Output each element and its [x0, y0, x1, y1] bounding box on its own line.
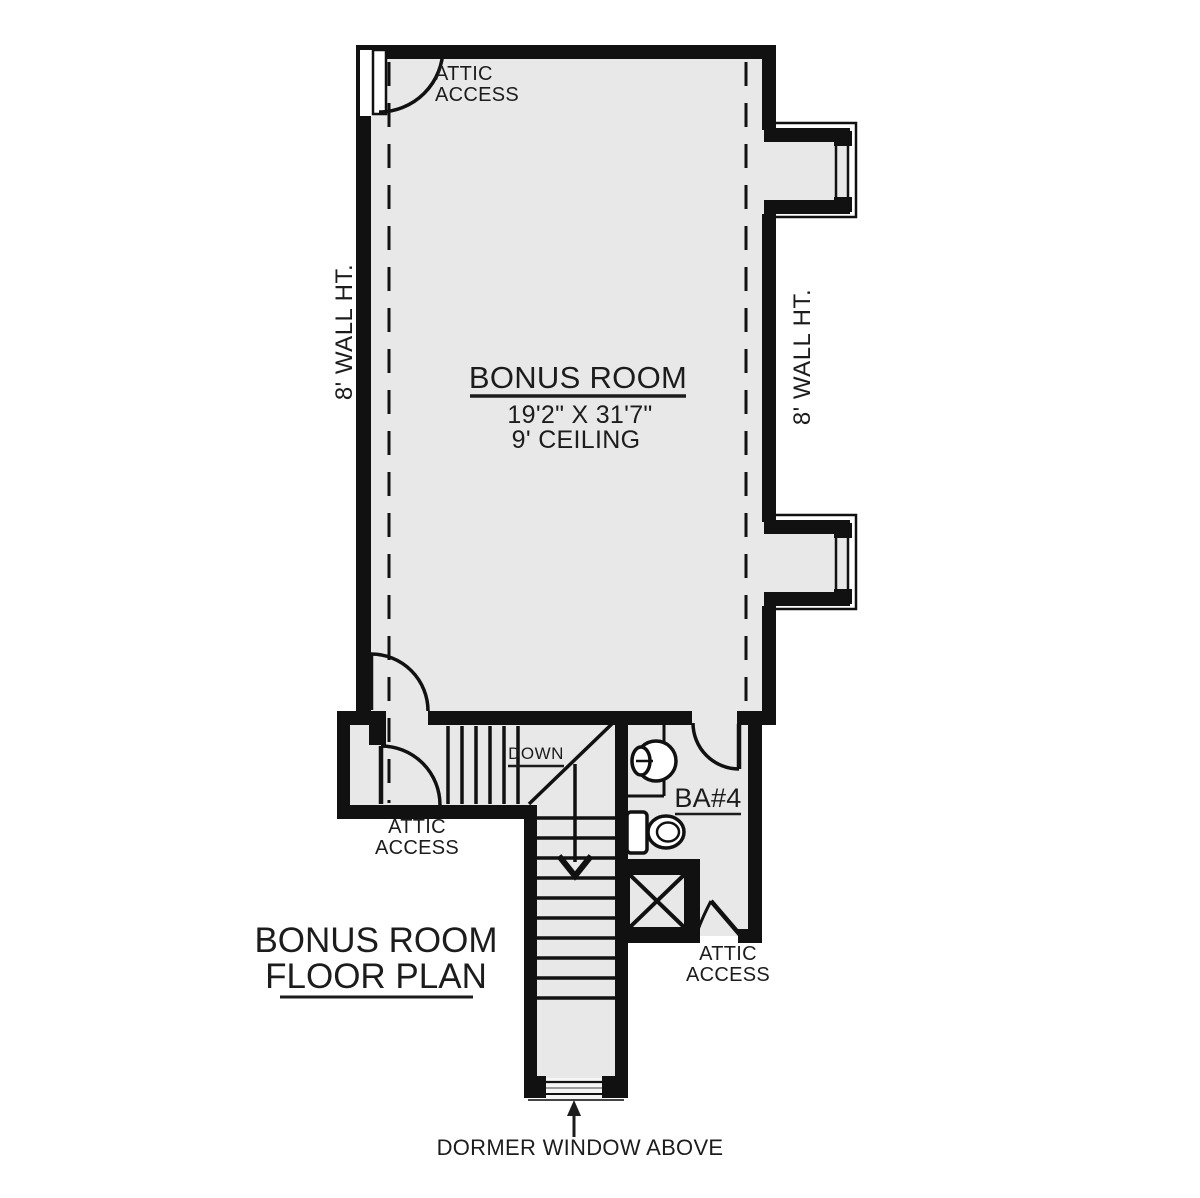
- wall-height-left-label: 8' WALL HT.: [331, 264, 358, 400]
- bathroom-label: BA#4: [674, 783, 741, 813]
- toilet-symbol: [627, 812, 684, 853]
- wall-height-right-label: 8' WALL HT.: [789, 289, 816, 425]
- plan-title-line2: FLOOR PLAN: [265, 957, 487, 996]
- room-name-label: BONUS ROOM: [469, 360, 687, 395]
- ceiling-height-label: 9' CEILING: [512, 426, 641, 454]
- room-dimensions-label: 19'2" X 31'7": [507, 401, 652, 429]
- dormer-window-bay-top: [764, 123, 856, 217]
- wall-left: [356, 45, 371, 713]
- floor-plan-page: ATTIC ACCESS 8' WALL HT. 8' WALL HT. BON…: [0, 0, 1200, 1198]
- attic-door-leaf-top: [373, 50, 386, 114]
- floor-plan-drawing: ATTIC ACCESS 8' WALL HT. 8' WALL HT. BON…: [0, 0, 1200, 1198]
- down-label: DOWN: [508, 744, 564, 763]
- alcove-wall-left: [337, 711, 350, 819]
- dormer-window-bay-bottom: [764, 515, 856, 609]
- wall-top: [356, 45, 776, 59]
- wall-right-lower: [762, 606, 776, 725]
- bathroom-wall-right: [748, 711, 762, 943]
- wall-bottom-main: [428, 711, 692, 725]
- bathroom-wall-bottom-corner: [738, 929, 762, 943]
- attic-door-opening: [360, 50, 372, 116]
- attic-access-bottom-left-label-line2: ACCESS: [375, 837, 459, 859]
- dormer-window-note-label: DORMER WINDOW ABOVE: [437, 1135, 724, 1160]
- dormer-arrow-head: [567, 1100, 581, 1116]
- toilet-tank: [627, 812, 647, 853]
- door-jamb-stub: [369, 711, 386, 745]
- attic-access-bottom-left-label-line1: ATTIC: [388, 816, 446, 838]
- plan-title-line1: BONUS ROOM: [254, 921, 497, 960]
- attic-access-top-label-line2: ACCESS: [435, 84, 519, 106]
- wall-right-upper: [762, 45, 776, 130]
- attic-access-bottom-right-label-line2: ACCESS: [686, 964, 770, 986]
- wall-right-middle: [762, 214, 776, 522]
- dormer-window-arrow-icon: [567, 1100, 581, 1137]
- attic-access-bottom-right-label-line1: ATTIC: [699, 943, 757, 965]
- shaft-wall-left: [524, 805, 537, 1080]
- dormer-window-jamb-right: [602, 1076, 628, 1098]
- dormer-window-jamb-left: [524, 1076, 546, 1098]
- attic-access-top-label-line1: ATTIC: [435, 63, 493, 85]
